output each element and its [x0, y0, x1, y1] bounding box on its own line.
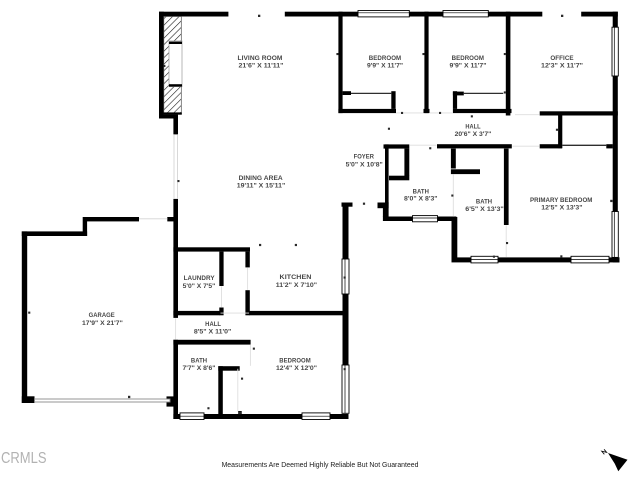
svg-text:8'5" X 11'0": 8'5" X 11'0"	[194, 328, 232, 335]
svg-text:5'0" X 7'5": 5'0" X 7'5"	[183, 283, 216, 290]
svg-text:Measurements Are Deemed Highly: Measurements Are Deemed Highly Reliable …	[222, 462, 419, 469]
svg-text:PRIMARY BEDROOM: PRIMARY BEDROOM	[530, 197, 593, 204]
svg-text:FOYER: FOYER	[354, 154, 375, 161]
svg-text:GARAGE: GARAGE	[89, 312, 116, 319]
svg-text:HALL: HALL	[205, 321, 221, 328]
svg-text:BATH: BATH	[476, 199, 493, 206]
svg-text:11'2" X 7'10": 11'2" X 7'10"	[276, 282, 317, 289]
svg-text:6'5" X 13'3": 6'5" X 13'3"	[465, 206, 504, 213]
svg-text:BEDROOM: BEDROOM	[452, 55, 484, 62]
svg-text:LIVING ROOM: LIVING ROOM	[238, 55, 283, 62]
svg-text:LAUNDRY: LAUNDRY	[184, 275, 216, 282]
svg-text:21'6" X 11'11": 21'6" X 11'11"	[239, 63, 284, 70]
svg-text:20'6" X 3'7": 20'6" X 3'7"	[455, 131, 492, 138]
svg-text:9'9" X 11'7": 9'9" X 11'7"	[367, 63, 403, 70]
svg-text:19'11" X 15'11": 19'11" X 15'11"	[237, 183, 286, 190]
svg-text:OFFICE: OFFICE	[550, 55, 574, 62]
svg-text:12'5" X 13'3": 12'5" X 13'3"	[541, 204, 582, 211]
svg-text:12'4" X 12'0": 12'4" X 12'0"	[276, 365, 317, 372]
svg-text:17'9" X 21'7": 17'9" X 21'7"	[82, 320, 123, 327]
svg-text:12'3" X 11'7": 12'3" X 11'7"	[541, 63, 583, 70]
svg-text:7'7" X 8'6": 7'7" X 8'6"	[183, 365, 216, 372]
svg-text:BEDROOM: BEDROOM	[279, 358, 311, 365]
svg-text:BATH: BATH	[191, 358, 208, 365]
svg-text:DINING AREA: DINING AREA	[239, 175, 283, 182]
svg-text:KITCHEN: KITCHEN	[280, 274, 312, 281]
svg-text:CRMLS: CRMLS	[1, 450, 47, 467]
svg-text:5'0" X 10'8": 5'0" X 10'8"	[346, 161, 383, 168]
svg-text:HALL: HALL	[465, 123, 480, 130]
svg-text:8'0" X 8'3": 8'0" X 8'3"	[404, 196, 438, 203]
svg-text:BEDROOM: BEDROOM	[369, 55, 401, 62]
svg-text:9'9" X 11'7": 9'9" X 11'7"	[450, 63, 487, 70]
